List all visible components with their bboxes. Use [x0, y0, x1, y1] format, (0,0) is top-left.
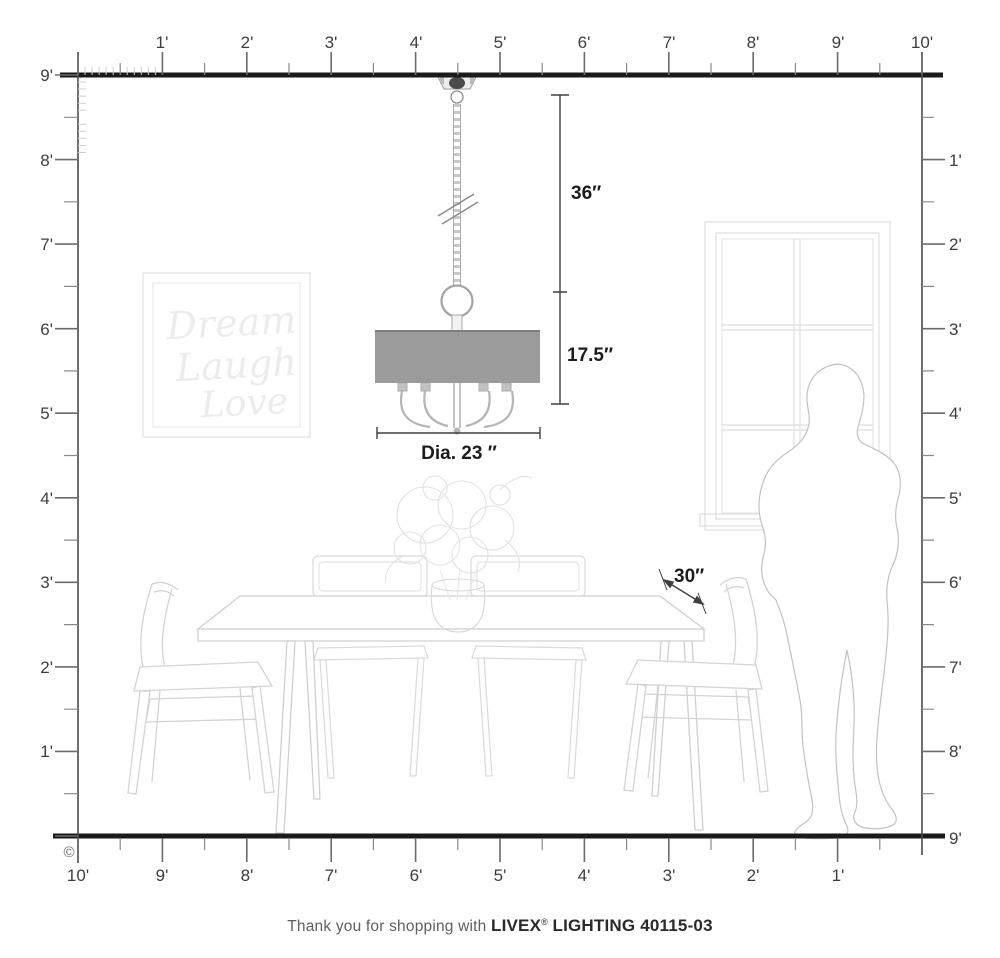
ruler-label: 7'	[663, 33, 676, 52]
ruler-label: 4'	[578, 866, 591, 885]
ruler-label: 5'	[949, 489, 962, 508]
ruler-label: 10'	[67, 866, 89, 885]
ruler-label: 5'	[494, 33, 507, 52]
footer-thanks-text: Thank you for shopping with	[287, 918, 486, 935]
chair-back-leg	[748, 689, 768, 792]
ruler-label: 2'	[747, 866, 760, 885]
registered-mark: ®	[541, 917, 548, 927]
candle-cup	[479, 383, 488, 391]
flower	[470, 506, 514, 550]
ruler-label: 3'	[949, 320, 962, 339]
ruler-label: 3'	[663, 866, 676, 885]
chair-seat	[134, 662, 272, 691]
canopy-screw	[440, 77, 444, 84]
ruler-label: 7'	[325, 866, 338, 885]
flower	[438, 481, 486, 529]
top-ruler-labels: 1' 2' 3' 4' 5' 6' 7' 8' 9' 10'	[156, 33, 933, 52]
chair-back-leg	[128, 691, 150, 794]
candle-cup	[398, 383, 407, 391]
table-leg	[276, 641, 295, 833]
chair-stretcher	[146, 696, 262, 722]
ruler-label: 8'	[241, 866, 254, 885]
ruler-label: 5'	[40, 404, 53, 423]
chair-back-post	[162, 589, 172, 672]
ruler-label: 10'	[911, 33, 933, 52]
ruler-label: 3'	[40, 573, 53, 592]
right-ruler-minor-ticks	[922, 117, 934, 793]
chair-seat	[626, 660, 762, 689]
ruler-label: 9'	[832, 33, 845, 52]
ruler-label: 1'	[40, 742, 53, 761]
candle-cup	[502, 383, 511, 391]
candle-cup	[421, 383, 430, 391]
ruler-label: 6'	[578, 33, 591, 52]
ruler-label: 8'	[747, 33, 760, 52]
scroll-arms	[401, 391, 513, 427]
center-column	[454, 383, 460, 428]
left-ruler-inch-ticks	[78, 82, 86, 153]
ring-ornament	[442, 286, 473, 317]
ruler-label: 9'	[949, 829, 962, 848]
right-ruler-labels: 1' 2' 3' 4' 5' 6' 7' 8' 9'	[949, 151, 962, 848]
chair-back-post	[726, 584, 736, 669]
ruler-label: 6'	[949, 573, 962, 592]
ruler-label: 9'	[156, 866, 169, 885]
table-depth-dimension: 30″	[674, 566, 704, 587]
scroll-arm	[466, 391, 490, 426]
left-ruler-minor-ticks	[64, 117, 78, 793]
table-leg	[305, 641, 320, 799]
flower-bud	[423, 476, 447, 500]
drum-shade	[375, 330, 540, 383]
flower-bud	[490, 485, 510, 505]
ruler-label: 1'	[832, 866, 845, 885]
ruler-label: 1'	[949, 151, 962, 170]
left-ruler-labels: 9' 8' 7' 6' 5' 4' 3' 2' 1'	[40, 66, 53, 761]
ruler-label: 8'	[949, 742, 962, 761]
far-chairs	[313, 556, 586, 778]
chain-drop-dimension: 36″	[571, 183, 601, 204]
bottom-ruler-labels: 10' 9' 8' 7' 6' 5' 4' 3' 2' 1'	[67, 866, 844, 885]
chain-rails	[454, 104, 461, 285]
chair-seat	[314, 646, 428, 660]
ruler-label: 4'	[949, 404, 962, 423]
chair-legs	[478, 658, 582, 778]
ruler-label: 2'	[40, 658, 53, 677]
copyright-symbol: ©	[63, 844, 74, 861]
chair-front-leg	[252, 686, 274, 793]
wall-art-text: Dream Laugh Love	[164, 298, 298, 427]
ruler-label: 6'	[40, 320, 53, 339]
scene: Dream Laugh Love	[0, 0, 1000, 958]
ruler-label: 2'	[949, 235, 962, 254]
ruler-label: 7'	[40, 235, 53, 254]
wall-art-line: Love	[199, 381, 289, 427]
diameter-dimension: Dia. 23 ″	[421, 443, 497, 464]
canopy-loop	[451, 91, 463, 103]
fixture-height-dimension: 17.5″	[567, 345, 613, 366]
chair-front-leg	[624, 684, 646, 791]
stem	[452, 315, 462, 331]
canopy-center	[449, 77, 465, 89]
table-top	[198, 596, 704, 629]
chair-legs	[320, 658, 424, 778]
footer: Thank you for shopping with LIVEX® LIGHT…	[0, 916, 1000, 936]
ruler-label: 5'	[494, 866, 507, 885]
ruler-label: 2'	[241, 33, 254, 52]
chair-seat	[472, 646, 586, 660]
ruler-label: 4'	[410, 33, 423, 52]
chair-top-rail	[152, 582, 178, 596]
ruler-label: 9'	[40, 66, 53, 85]
canopy-screw	[470, 77, 474, 84]
ruler-label: 4'	[40, 489, 53, 508]
brand-name: LIVEX	[491, 916, 541, 935]
product-dimension-diagram: Dream Laugh Love	[0, 0, 1000, 958]
ruler-label: 8'	[40, 151, 53, 170]
ruler-label: 1'	[156, 33, 169, 52]
ruler-label: 3'	[325, 33, 338, 52]
ruler-label: 6'	[410, 866, 423, 885]
scroll-arm	[424, 391, 448, 426]
chair-top-rail	[720, 577, 746, 592]
pendant-fixture	[375, 77, 540, 435]
model-number: LIGHTING 40115-03	[553, 916, 713, 935]
ruler-label: 7'	[949, 658, 962, 677]
chair-inner-legs	[152, 688, 250, 782]
